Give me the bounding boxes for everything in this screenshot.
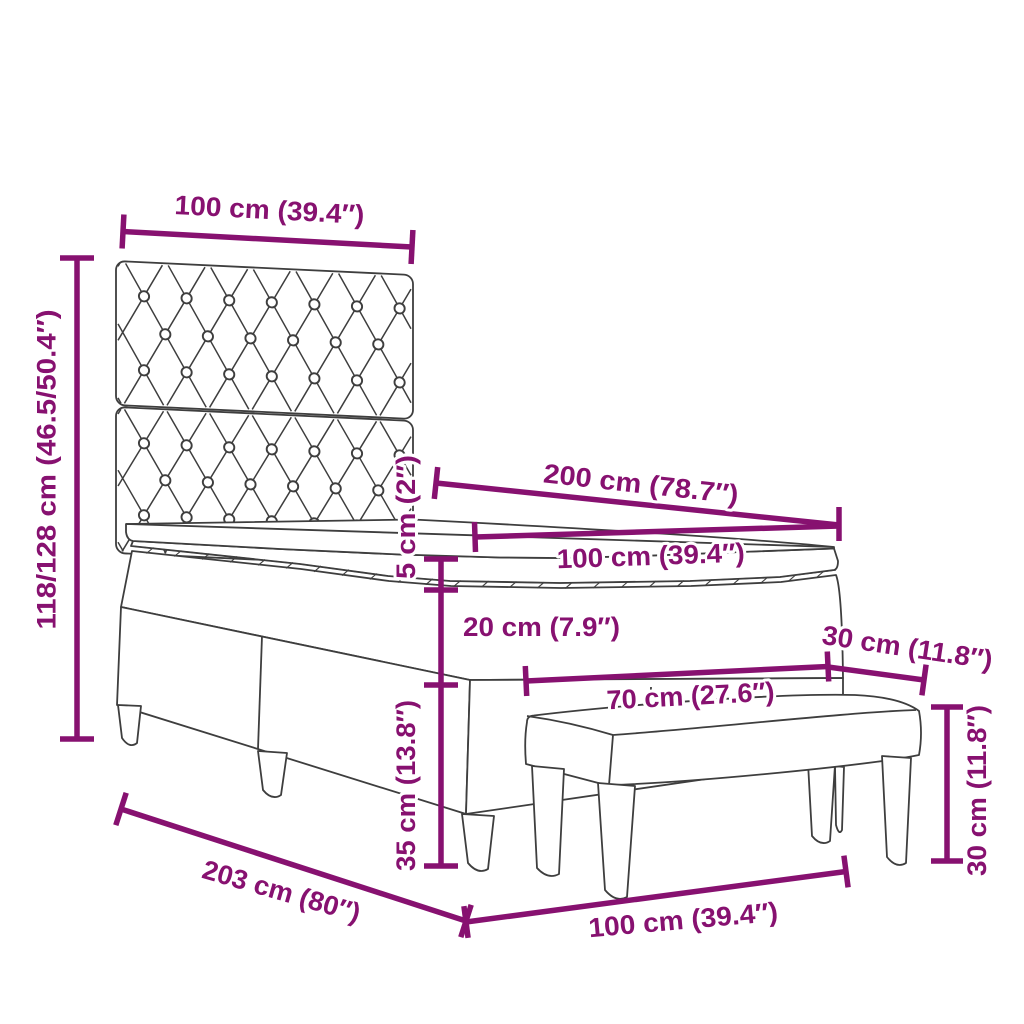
svg-text:118/128 cm (46.5/50.4″): 118/128 cm (46.5/50.4″)	[32, 310, 62, 630]
svg-text:5 cm (2″): 5 cm (2″)	[391, 455, 421, 579]
svg-text:20 cm (7.9″): 20 cm (7.9″)	[463, 612, 620, 642]
svg-text:30 cm (11.8″): 30 cm (11.8″)	[962, 705, 992, 876]
svg-text:35 cm (13.8″): 35 cm (13.8″)	[391, 700, 421, 871]
